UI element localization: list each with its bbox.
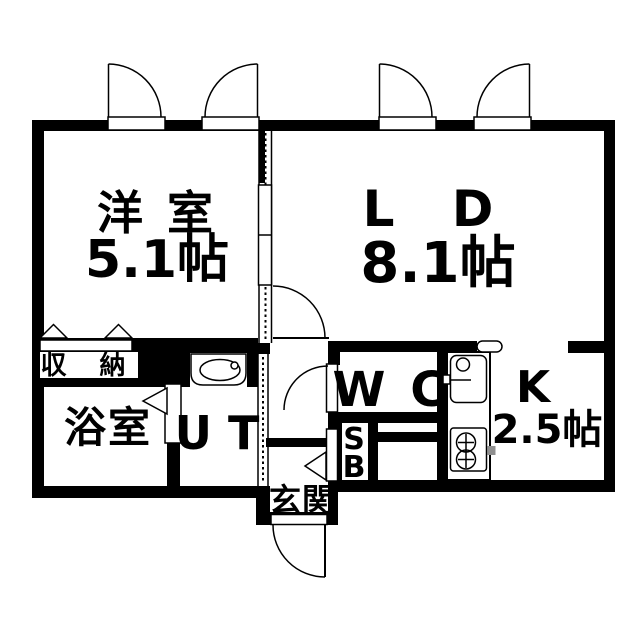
wall-partition-stub: [259, 130, 265, 183]
label-living-dining-size: 8.1帖: [360, 231, 515, 296]
label-shoebox-b: B: [343, 450, 366, 485]
outer-wall-right: [604, 120, 615, 492]
label-toilet: W C: [333, 362, 450, 418]
label-living-dining: L D: [363, 180, 514, 238]
wall-kitchen-stub: [568, 341, 605, 353]
floorplan-drawing: 洋 室 5.1帖 L D 8.1帖 K 2.5帖 W C U T 浴室 玄関 収…: [0, 0, 640, 640]
closet-door-track: [40, 340, 132, 351]
wall-wc-top: [328, 341, 477, 352]
label-kitchen: K: [516, 362, 552, 413]
washbasin-icon: [190, 353, 247, 387]
stove-body: [451, 428, 487, 471]
outer-wall-bottom-right: [330, 480, 615, 492]
window-sill: [379, 117, 436, 130]
sink-drain: [457, 358, 470, 371]
label-storage: 収 納: [40, 350, 137, 381]
wall-shoebox-right: [368, 423, 378, 480]
window-sill: [202, 117, 259, 130]
window-sill: [108, 117, 165, 130]
label-utility: U T: [175, 406, 260, 460]
label-kitchen-size: 2.5帖: [492, 407, 603, 453]
label-western-room-size: 5.1帖: [85, 230, 229, 290]
outer-wall-left: [32, 120, 44, 498]
wall-entrance-step: [266, 438, 328, 447]
label-entrance: 玄関: [269, 481, 335, 519]
washbasin-tap: [231, 362, 238, 369]
wall-nook-bar: [378, 432, 437, 442]
faucet-icon: [477, 341, 502, 352]
outer-wall-bottom-left: [32, 486, 262, 498]
door-panel: [327, 429, 338, 481]
background: [0, 0, 640, 640]
floorplan: 洋 室 5.1帖 L D 8.1帖 K 2.5帖 W C U T 浴室 玄関 収…: [0, 0, 640, 640]
window-sill: [474, 117, 531, 130]
label-bath: 浴室: [64, 403, 152, 452]
